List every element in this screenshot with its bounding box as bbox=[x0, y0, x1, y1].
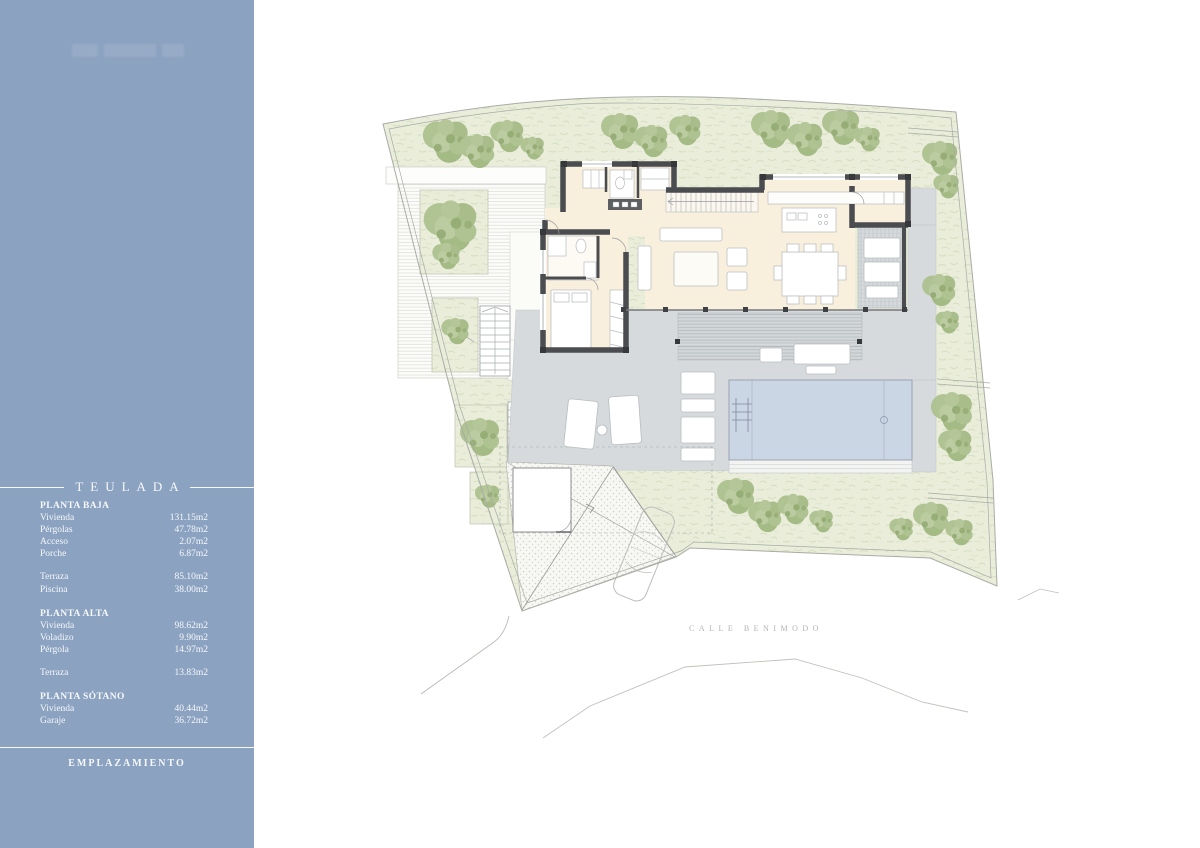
area-row: Terraza 85.10m2 bbox=[40, 571, 208, 583]
corner-mark bbox=[1018, 589, 1059, 600]
title-rule-right bbox=[190, 487, 254, 488]
area-row: Acceso 2.07m2 bbox=[40, 536, 208, 548]
logo-watermark bbox=[72, 44, 190, 57]
section-title-planta-sotano: PLANTA SÓTANO bbox=[40, 691, 208, 703]
street-label: CALLE BENIMODO bbox=[689, 624, 823, 633]
section-title-planta-baja: PLANTA BAJA bbox=[40, 500, 208, 512]
area-row: Pérgola 14.97m2 bbox=[40, 644, 208, 656]
contour-line bbox=[543, 659, 968, 738]
area-row: Garaje 36.72m2 bbox=[40, 715, 208, 727]
area-row: Vivienda 98.62m2 bbox=[40, 620, 208, 632]
project-title: TEULADA bbox=[64, 479, 189, 495]
street: CALLE BENIMODO bbox=[421, 589, 1059, 738]
drawing-name: EMPLAZAMIENTO bbox=[0, 758, 254, 769]
area-row: Vivienda 40.44m2 bbox=[40, 703, 208, 715]
pergola-east bbox=[858, 224, 906, 308]
info-sidebar: TEULADA PLANTA BAJA Vivienda 131.15m2 Pé… bbox=[0, 0, 254, 848]
area-row: Voladizo 9.90m2 bbox=[40, 632, 208, 644]
area-row: Terraza 13.83m2 bbox=[40, 667, 208, 679]
title-rule-left bbox=[0, 487, 64, 488]
garage-access bbox=[513, 468, 571, 532]
section-title-planta-alta: PLANTA ALTA bbox=[40, 608, 208, 620]
curb-line bbox=[421, 616, 509, 694]
stairs bbox=[666, 191, 758, 212]
area-row: Pérgolas 47.78m2 bbox=[40, 524, 208, 536]
project-titlebar: TEULADA bbox=[0, 479, 254, 495]
area-row: Piscina 38.00m2 bbox=[40, 584, 208, 596]
area-row: Vivienda 131.15m2 bbox=[40, 512, 208, 524]
area-schedule: PLANTA BAJA Vivienda 131.15m2 Pérgolas 4… bbox=[40, 500, 208, 727]
sidebar-divider bbox=[0, 747, 254, 748]
area-row: Porche 6.87m2 bbox=[40, 548, 208, 560]
pool bbox=[729, 380, 912, 473]
